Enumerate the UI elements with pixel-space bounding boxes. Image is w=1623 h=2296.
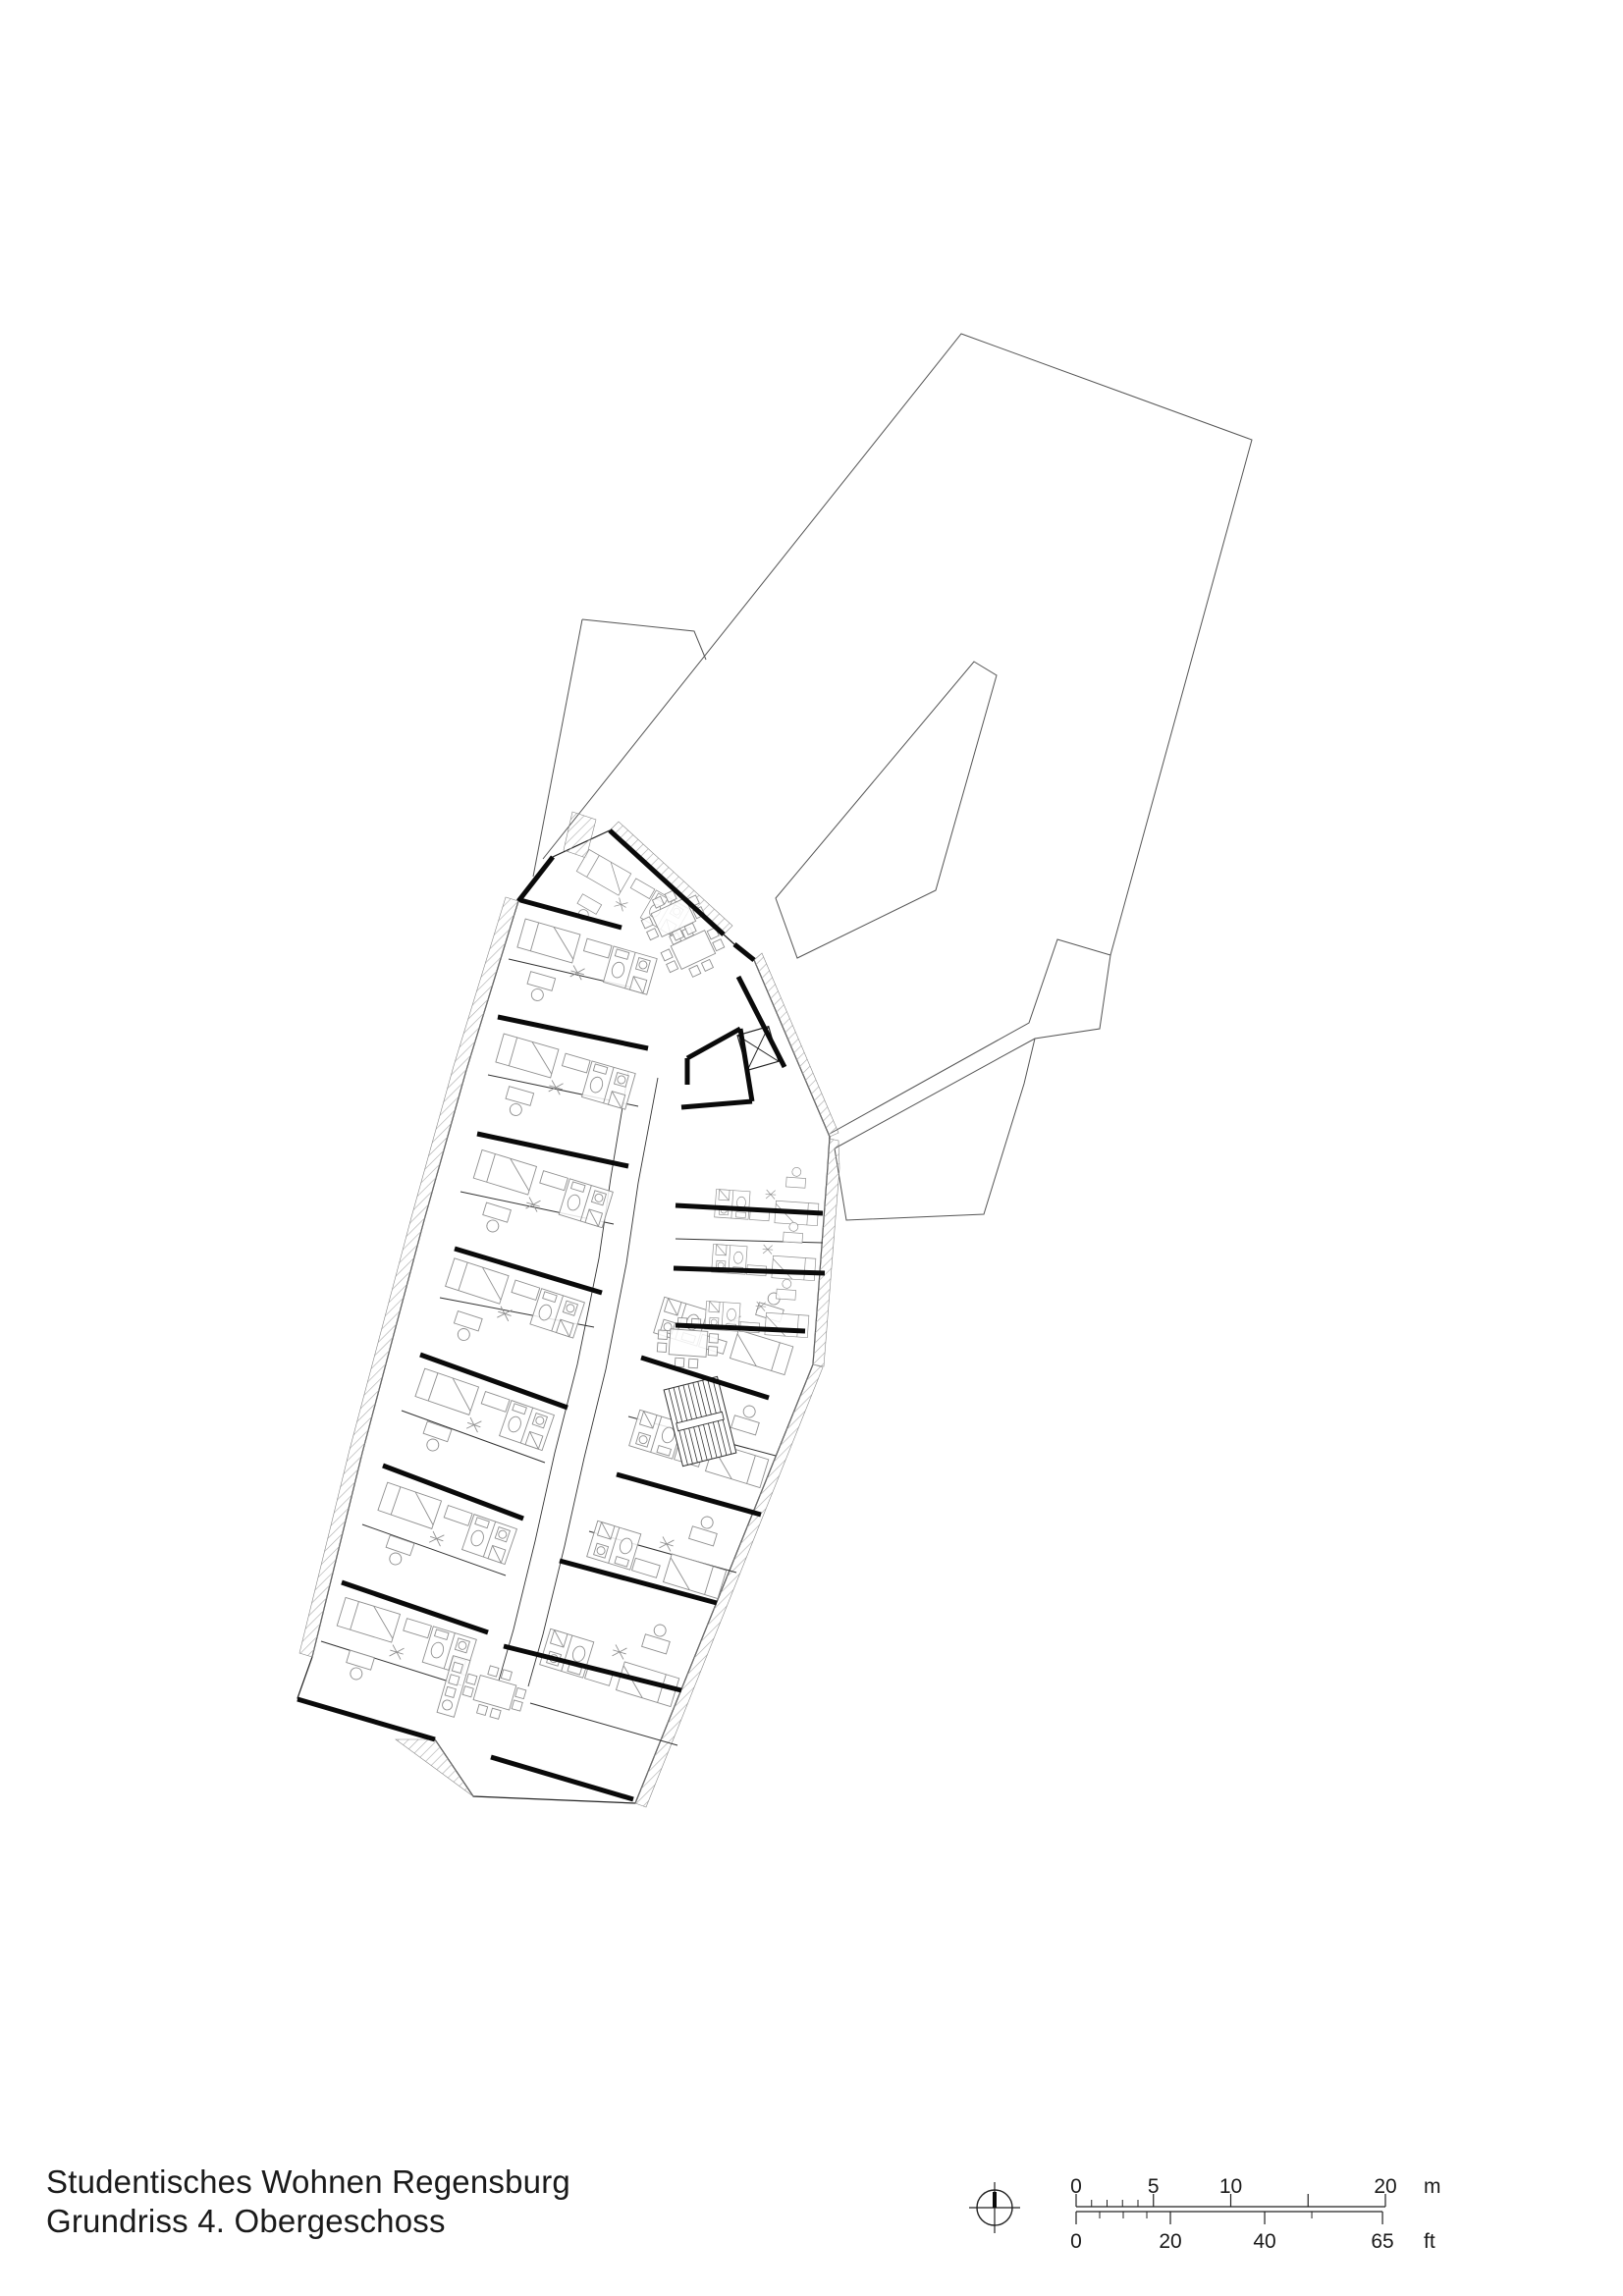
furniture-item (657, 1343, 667, 1353)
furniture-item (515, 1687, 526, 1698)
scalebar-unit: m (1424, 2175, 1441, 2198)
scalebar-label: 20 (1159, 2230, 1181, 2253)
furniture-item (785, 1177, 805, 1188)
furniture-item (658, 1330, 668, 1340)
furniture-item (490, 1708, 501, 1719)
site-outline (582, 619, 706, 660)
furniture-item (466, 1674, 477, 1684)
north-arrow-icon (969, 2182, 1020, 2233)
furniture-item (789, 1222, 799, 1232)
project-title: Studentisches Wohnen Regensburg (46, 2163, 570, 2202)
courtyard-outline (776, 662, 997, 958)
scalebar-meters: 051020m (1070, 2175, 1440, 2207)
furniture-item (735, 1212, 745, 1218)
furniture-item (708, 1347, 718, 1357)
furniture-item (776, 1289, 795, 1300)
scalebar-label: 65 (1371, 2230, 1393, 2253)
furniture-item (783, 1279, 792, 1289)
furniture-item (709, 1334, 719, 1344)
annotations: 051020m0204065ft (969, 2175, 1441, 2253)
furniture-item (445, 1686, 456, 1697)
furniture-item (501, 1670, 512, 1681)
scalebar-label: 20 (1374, 2175, 1396, 2198)
furniture-item (462, 1686, 473, 1697)
scalebar-label: 10 (1219, 2175, 1242, 2198)
scalebar-feet: 0204065ft (1070, 2212, 1435, 2253)
scalebar-label: 0 (1070, 2230, 1082, 2253)
furniture-item (669, 1329, 708, 1358)
furniture-item (449, 1675, 460, 1685)
scalebar-label: 5 (1148, 2175, 1160, 2198)
furniture-item (675, 1358, 684, 1367)
site-outline (835, 1039, 1035, 1220)
furniture-item (792, 1167, 802, 1177)
scalebar-label: 0 (1070, 2175, 1082, 2198)
scalebar-unit: ft (1424, 2230, 1435, 2253)
furniture-item (783, 1232, 802, 1243)
floor-plan-svg: 051020m0204065ft (0, 0, 1623, 2296)
scalebar-label: 40 (1253, 2230, 1275, 2253)
title-block: Studentisches Wohnen Regensburg Grundris… (46, 2163, 570, 2241)
drawing-sheet: 051020m0204065ft Studentisches Wohnen Re… (0, 0, 1623, 2296)
furniture-item (765, 1312, 809, 1337)
furniture-item (772, 1255, 816, 1280)
furniture-item (512, 1700, 522, 1711)
site-outline (835, 955, 1110, 1148)
furniture-item (488, 1666, 499, 1677)
furniture-item (477, 1704, 488, 1715)
furniture-item (688, 1359, 698, 1368)
furniture-item (452, 1662, 462, 1673)
drawing-title: Grundriss 4. Obergeschoss (46, 2202, 570, 2241)
